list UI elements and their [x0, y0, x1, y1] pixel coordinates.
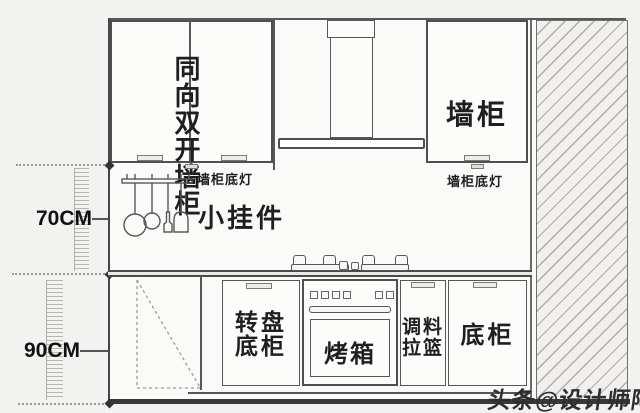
dim-extension-line-bottom: [18, 403, 108, 405]
pan-support: [323, 255, 336, 265]
dim-70cm-label: 70CM: [36, 207, 92, 231]
base-section-divider: [200, 276, 202, 390]
range-hood-icon: [278, 138, 425, 149]
burner-bar: [361, 264, 409, 271]
range-hood-duct-top: [327, 20, 375, 38]
range-hood-duct: [330, 38, 373, 138]
spice-basket-label: 调料 拉篮: [400, 317, 446, 359]
double-cabinet-label-line1: 同向: [160, 56, 220, 110]
carousel-label-line2: 底柜: [222, 334, 300, 358]
carousel-cabinet-label: 转盘 底柜: [222, 310, 300, 358]
door-handle: [411, 282, 435, 288]
base-cabinet-label: 底柜: [448, 315, 527, 350]
pan-support: [362, 255, 375, 265]
right-wall-cabinet-label: 墙柜: [426, 93, 528, 133]
toe-kick-line: [188, 392, 530, 394]
hanging-items-label: 小挂件: [198, 198, 285, 235]
oven-label: 烤箱: [310, 334, 390, 369]
corner-blind-area: [108, 276, 204, 392]
turner-icon: [174, 212, 188, 232]
under-light-label-right: 墙柜底灯: [447, 171, 503, 190]
spatula-icon: [164, 212, 172, 232]
door-handle: [246, 283, 272, 289]
right-wall-cabinet: [426, 20, 528, 163]
oven-control-button: [321, 291, 329, 299]
wall-hatch-pattern: [536, 20, 628, 401]
hood-section-left-line: [273, 20, 275, 170]
oven-control-button: [310, 291, 318, 299]
door-handle: [221, 155, 247, 161]
pan-support: [395, 255, 408, 265]
pan-icon: [124, 214, 146, 236]
dim-extension-line-top: [16, 164, 108, 166]
dim-70cm-leader: [92, 218, 108, 220]
carousel-label-line1: 转盘: [222, 310, 300, 334]
under-light-label-left: 墙柜底灯: [197, 169, 253, 188]
dim-90cm-label: 90CM: [24, 339, 80, 363]
oven-control-button: [332, 291, 340, 299]
pan-support: [293, 255, 306, 265]
stove-knob: [339, 261, 348, 270]
oven-control-button: [343, 291, 351, 299]
double-cabinet-label-line2: 双开: [160, 110, 220, 164]
door-handle: [137, 155, 163, 161]
wall-inner-line: [530, 20, 532, 399]
kitchen-elevation-diagram: 同向 双开 墙柜 墙柜底灯 墙柜 墙柜底灯 小挂件: [0, 0, 640, 413]
oven-control-button: [375, 291, 383, 299]
spice-label-line1: 调料: [400, 317, 446, 338]
spice-label-line2: 拉篮: [400, 338, 446, 359]
utensil-rack-icon: [115, 170, 200, 240]
ring-icon: [144, 213, 160, 229]
dim-90cm-leader: [80, 350, 108, 352]
under-cabinet-light-icon: [471, 164, 484, 169]
door-handle: [464, 155, 490, 161]
watermark: 头条@设计师阿爽: [486, 381, 640, 413]
door-handle: [473, 282, 497, 288]
dim-extension-line-mid: [12, 273, 108, 275]
stove-knob: [351, 262, 359, 270]
oven-handle: [309, 306, 391, 313]
oven-control-button: [386, 291, 394, 299]
